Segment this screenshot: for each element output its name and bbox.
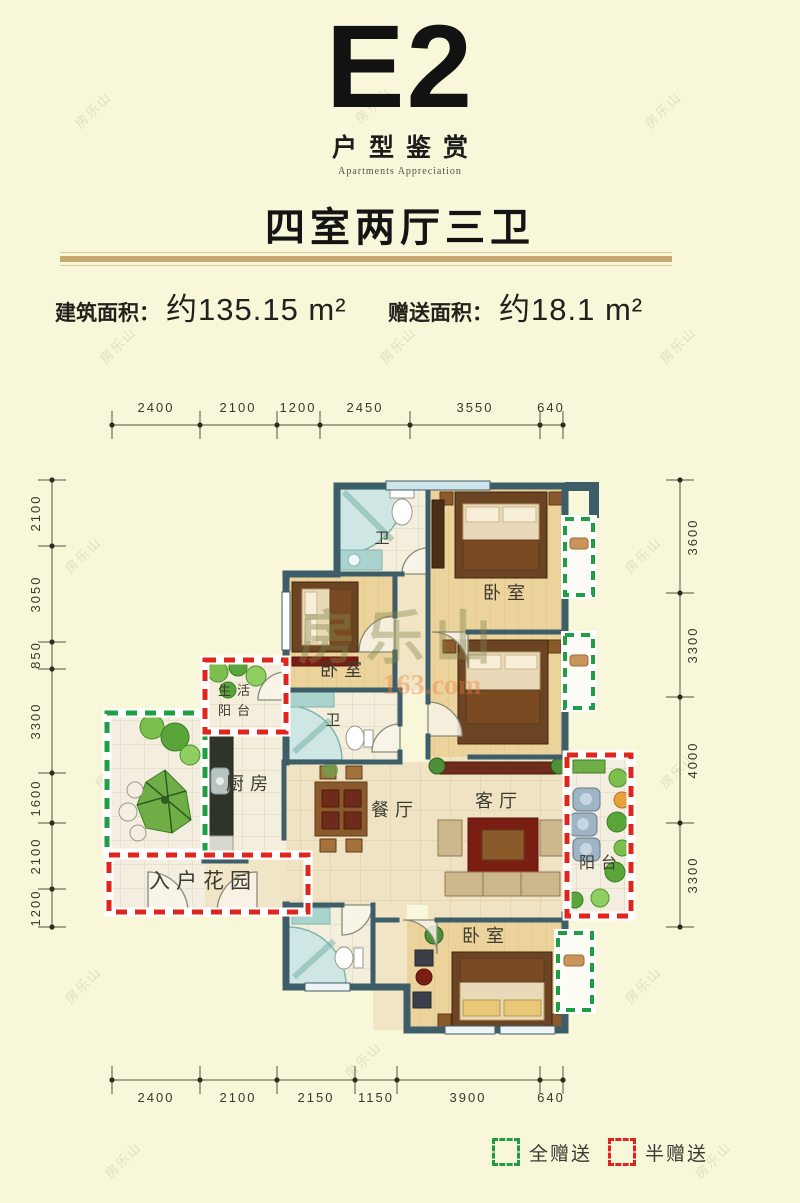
label-kitchen: 厨房 [226,774,274,794]
toilet-bath3 [335,947,353,969]
label-balcony: 阳台 [579,854,623,872]
dining-chair [346,766,362,779]
svg-text:2100: 2100 [28,495,43,532]
full-gift-label: 全赠送 [529,1139,592,1166]
window-bedroom4 [445,1026,495,1034]
plant [208,662,228,682]
svg-text:2450: 2450 [347,400,384,415]
svg-text:2100: 2100 [220,400,257,415]
toilet-bath2 [346,726,364,750]
svg-text:3600: 3600 [685,519,700,556]
label-living: 客厅 [475,791,523,811]
plant [591,889,609,907]
svg-text:2100: 2100 [28,838,43,875]
tv-cabinet [440,762,556,774]
half-gift-label: 半赠送 [645,1139,708,1166]
gift-area-value: 约18.1 m² [499,284,643,329]
window-bath3 [305,983,350,991]
bedroom4-entry-floor [373,905,407,1030]
window-top [386,481,490,490]
svg-text:3300: 3300 [685,857,700,894]
garden-chair [119,803,137,821]
legend-half-gift: 半赠送 [608,1138,708,1166]
svg-text:2150: 2150 [298,1090,335,1105]
nightstand [438,1014,451,1027]
garden-plant [180,745,200,765]
dining-chair [320,839,336,852]
svg-text:3300: 3300 [685,627,700,664]
header: E2 户型鉴赏 Apartments Appreciation 四室两厅三卫 [0,0,800,253]
divider [60,252,672,266]
legend: 全赠送 半赠送 [492,1138,708,1166]
label-service-1: 生活 [218,683,256,698]
svg-text:2100: 2100 [220,1090,257,1105]
svg-text:3050: 3050 [28,576,43,613]
label-dining: 餐厅 [371,800,419,820]
floor-plan: 2400 2100 1200 2450 3550 640 2400 2100 2… [0,380,800,1120]
watermark: 房乐山 [655,322,700,367]
label-bath2: 卫 [325,713,346,729]
chair [413,992,431,1008]
planter [573,760,605,773]
layout-summary: 四室两厅三卫 [0,195,800,253]
svg-text:3300: 3300 [28,703,43,740]
svg-text:1200: 1200 [28,890,43,927]
svg-text:2400: 2400 [138,400,175,415]
label-entry-garden: 入户花园 [149,869,257,893]
plan-subtitle-en: Apartments Appreciation [0,166,800,177]
vanity-bath1 [340,550,382,570]
plant [607,812,627,832]
garden-chair [130,825,146,841]
chair [415,950,433,966]
label-bedroom4: 卧室 [462,926,510,946]
svg-text:850: 850 [28,641,43,669]
nightstand [549,492,562,505]
legend-full-gift: 全赠送 [492,1138,592,1166]
garden-chair [127,782,143,798]
svg-text:3550: 3550 [457,400,494,415]
nightstand [551,1014,563,1027]
label-bedroom1: 卧室 [483,583,531,603]
svg-text:640: 640 [537,400,565,415]
coffee-table [482,830,524,860]
toilet-bath1 [392,499,412,525]
svg-text:1150: 1150 [358,1090,394,1105]
water-feature [570,788,600,861]
built-area-label: 建筑面积： [55,297,160,327]
svg-text:4000: 4000 [685,742,700,779]
plan-subtitle: 户型鉴赏 [0,128,800,164]
gift-area: 赠送面积： 约18.1 m² [388,284,643,329]
svg-text:3900: 3900 [450,1090,487,1105]
plan-code-title: E2 [0,8,800,126]
svg-text:1200: 1200 [280,400,317,415]
nightstand [548,640,561,653]
window-bedroom2 [282,592,290,650]
armchair [540,820,564,856]
label-service-2: 阳台 [218,703,256,718]
side-table [416,969,432,985]
dining-chair [346,839,362,852]
watermark: 房乐山 [100,1137,145,1182]
plant [429,758,445,774]
label-bath1: 卫 [374,531,395,547]
garden-plant [140,715,164,739]
window-bedroom4b [500,1026,555,1034]
built-area: 建筑面积： 约135.15 m² [55,284,347,329]
svg-text:163.com: 163.com [383,670,482,701]
half-gift-swatch [608,1138,636,1166]
svg-text:房乐山: 房乐山 [298,606,502,671]
gift-area-label: 赠送面积： [388,297,493,327]
built-area-value: 约135.15 m² [166,284,347,329]
armchair [438,820,462,856]
wardrobe-bedroom1 [432,500,444,568]
full-gift-swatch [492,1138,520,1166]
svg-text:2400: 2400 [138,1090,175,1105]
svg-text:1600: 1600 [28,780,43,817]
plant [609,769,627,787]
vanity-bath2 [290,692,334,707]
sofa-main [445,872,560,896]
svg-text:640: 640 [537,1090,565,1105]
